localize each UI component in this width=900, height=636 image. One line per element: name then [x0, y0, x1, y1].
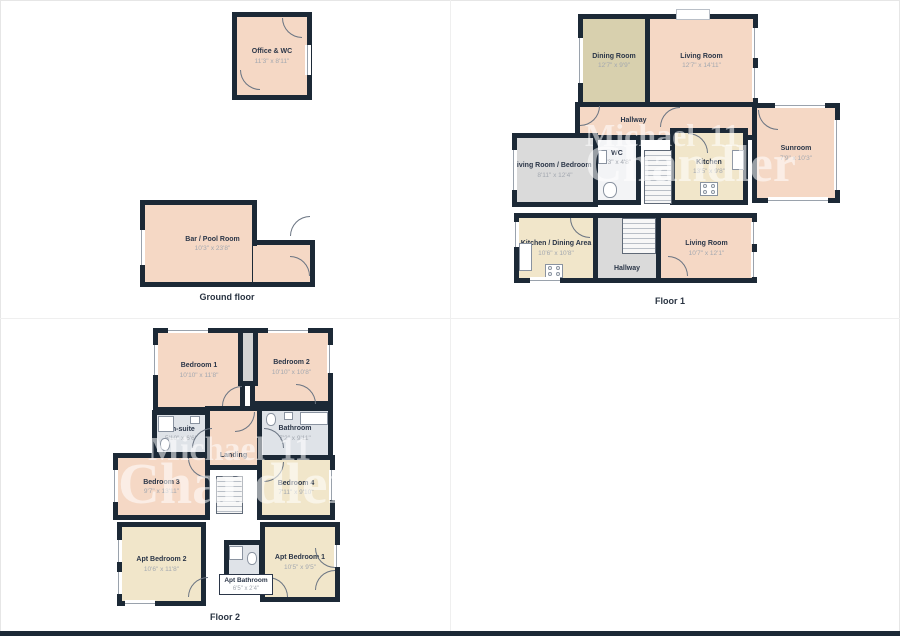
floor-label-2: Floor 2 — [150, 612, 300, 622]
room-dims: 11'3" x 8'11" — [255, 58, 290, 65]
toilet-icon — [247, 552, 257, 565]
burner-icon — [556, 272, 560, 276]
room-bar-pool: Bar / Pool Room 10'3" x 23'8" — [140, 200, 257, 287]
room-label: Kitchen — [696, 158, 722, 167]
window — [751, 252, 757, 277]
window — [112, 470, 118, 502]
room-label: Landing — [220, 451, 247, 460]
bathtub-icon — [300, 412, 328, 425]
bottom-accent-bar — [0, 631, 900, 636]
burner-icon — [703, 184, 707, 188]
closet — [238, 328, 258, 386]
room-dims: 12'7" x 9'9" — [598, 62, 630, 69]
room-label: Bathroom — [278, 424, 311, 433]
room-living-top: Living Room 12'7" x 14'11" — [645, 14, 758, 107]
room-wc: WC 3'3" x 4'8" — [593, 135, 641, 205]
room-label: Apt Bedroom 2 — [136, 555, 186, 564]
stairs — [622, 218, 656, 254]
window — [329, 470, 335, 500]
room-dims: 10'3" x 23'8" — [195, 245, 231, 252]
room-dims: 3'3" x 4'8" — [603, 159, 631, 166]
stairs — [644, 150, 672, 204]
room-label: Living Room — [685, 239, 727, 248]
toilet-icon — [160, 438, 170, 451]
window — [775, 102, 825, 108]
room-dims: 10'7" x 12'1" — [689, 250, 725, 257]
burner-icon — [548, 272, 552, 276]
stairs — [216, 476, 243, 514]
room-label: Dining Room — [592, 52, 636, 61]
window — [152, 345, 158, 375]
shower-icon — [229, 546, 243, 560]
room-dims: 10'10" x 10'8" — [272, 369, 311, 376]
counter-icon — [519, 243, 532, 271]
apt-bathroom-labelbox: Apt Bathroom 6'5" x 2'4" — [219, 574, 273, 595]
floorplan-canvas: Office & WC 11'3" x 8'11" Bar / Pool Roo… — [0, 0, 900, 636]
room-dims: 10'10" x 11'8" — [180, 372, 219, 379]
shower-icon — [158, 416, 174, 432]
room-bedroom2: Bedroom 2 10'10" x 10'8" — [250, 328, 333, 406]
room-label: Bedroom 3 — [143, 478, 180, 487]
room-dims: 10'5" x 9'5" — [284, 564, 316, 571]
burner-icon — [711, 190, 715, 194]
burner-icon — [703, 190, 707, 194]
door-arc — [290, 216, 310, 236]
stove-icon — [545, 264, 563, 278]
window — [305, 45, 311, 75]
room-living-bedroom5: Living Room / Bedroom 5 8'11" x 12'4" — [512, 133, 598, 207]
room-dims: 12'7" x 14'11" — [682, 62, 721, 69]
window — [116, 540, 122, 562]
window — [834, 120, 840, 190]
room-label: Living Room / Bedroom 5 — [513, 161, 598, 170]
floor-label-1: Floor 1 — [595, 296, 745, 306]
sink-icon — [190, 416, 200, 424]
window — [168, 327, 208, 333]
room-dims: 10'6" x 10'8" — [538, 250, 574, 257]
window — [752, 28, 758, 58]
room-label: Bedroom 1 — [181, 361, 218, 370]
room-label: Living Room — [680, 52, 722, 61]
room-dims: 7'2" x 9'11" — [279, 435, 311, 442]
window — [751, 222, 757, 244]
room-label: Sunroom — [781, 144, 812, 153]
room-dims: 7'11" x 9'10" — [278, 489, 313, 496]
window — [530, 277, 560, 283]
divider-vertical — [450, 0, 451, 636]
room-label: Bedroom 4 — [278, 479, 315, 488]
room-dims: 10'6" x 11'8" — [144, 566, 179, 573]
fridge-icon — [732, 150, 744, 170]
burner-icon — [711, 184, 715, 188]
room-label: Bar / Pool Room — [185, 235, 239, 244]
room-dims: 8'11" x 12'4" — [537, 172, 572, 179]
window — [139, 230, 145, 265]
room-dims: 7'9" x 10'3" — [780, 155, 812, 162]
room-label: WC — [611, 149, 623, 158]
window — [752, 68, 758, 98]
room-label: Hallway — [614, 264, 640, 273]
room-label: Office & WC — [252, 47, 292, 56]
room-dims: 9'7" x 13'11" — [144, 488, 179, 495]
sink-icon — [598, 150, 607, 164]
burner-icon — [548, 266, 552, 270]
toilet-icon — [603, 182, 617, 198]
chimney-notch — [676, 9, 710, 20]
toilet-icon — [266, 413, 276, 426]
room-dims: 6'5" x 2'4" — [233, 586, 259, 592]
room-dims: 13'5" x 9'8" — [693, 168, 725, 175]
window — [327, 345, 333, 373]
room-dining: Dining Room 12'7" x 9'9" — [578, 14, 650, 107]
window — [116, 572, 122, 594]
room-label: Hallway — [620, 116, 646, 125]
window — [768, 197, 828, 203]
room-label: Bedroom 2 — [273, 358, 310, 367]
window — [268, 327, 308, 333]
window — [577, 38, 583, 83]
window — [125, 600, 155, 606]
stove-icon — [700, 182, 718, 196]
sink-icon — [284, 412, 293, 420]
window — [513, 222, 519, 247]
room-label: Apt Bathroom — [224, 577, 267, 586]
wall-patch — [253, 246, 261, 282]
window — [511, 150, 517, 190]
burner-icon — [556, 266, 560, 270]
floor-label-ground: Ground floor — [152, 292, 302, 302]
